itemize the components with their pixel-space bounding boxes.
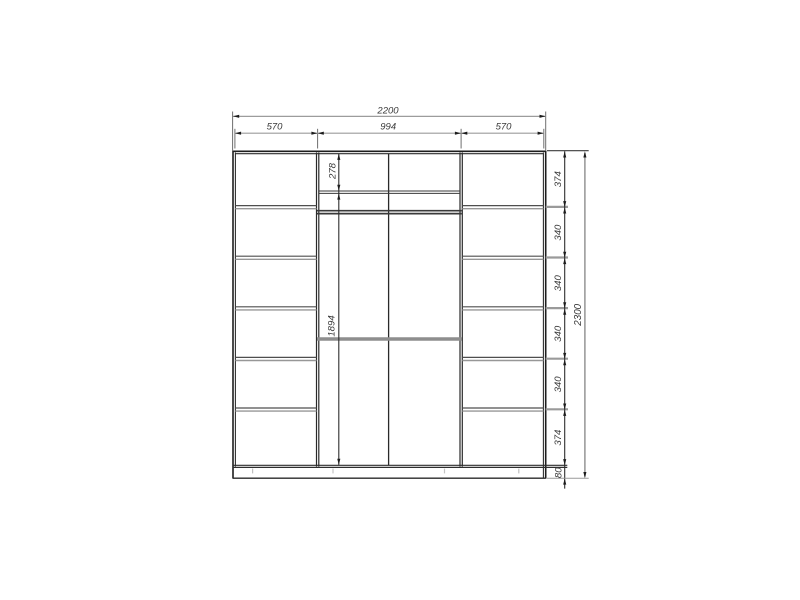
svg-text:278: 278 [328, 162, 339, 180]
svg-text:2200: 2200 [376, 105, 399, 116]
svg-text:570: 570 [496, 122, 513, 133]
svg-text:340: 340 [553, 325, 564, 342]
svg-text:340: 340 [553, 376, 564, 393]
svg-text:374: 374 [553, 171, 564, 187]
svg-text:374: 374 [553, 430, 564, 446]
svg-text:994: 994 [380, 122, 396, 133]
svg-text:570: 570 [267, 122, 284, 133]
svg-text:80: 80 [553, 467, 564, 478]
svg-text:340: 340 [553, 224, 564, 241]
svg-text:1894: 1894 [327, 315, 338, 336]
svg-text:340: 340 [553, 275, 564, 292]
svg-text:2300: 2300 [573, 303, 584, 326]
